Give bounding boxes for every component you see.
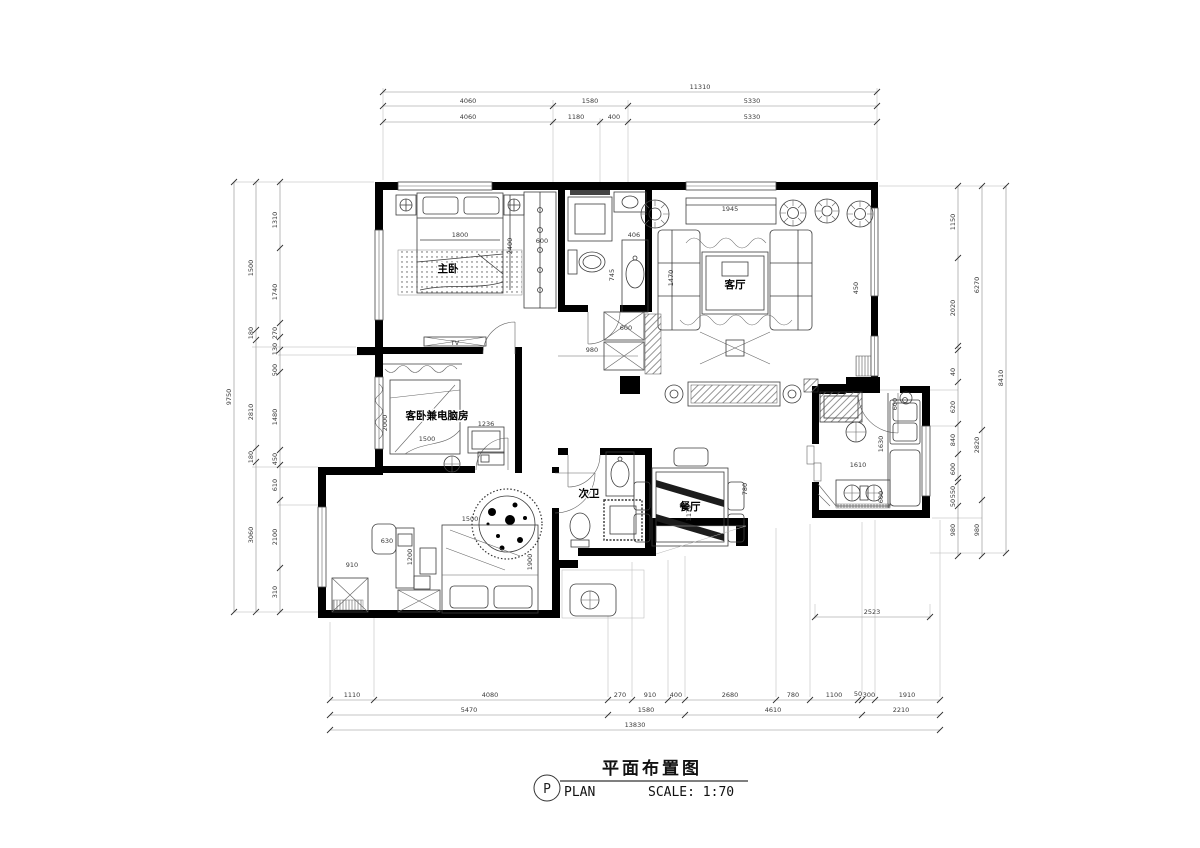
- dimension-label: 406: [628, 231, 640, 239]
- dimension-label: 400: [670, 691, 682, 699]
- dimension-label: 5330: [744, 113, 761, 121]
- dimension-label: 310: [271, 586, 279, 598]
- dimension-label: 910: [644, 691, 656, 699]
- dimension-label: 2820: [973, 437, 981, 454]
- dimension-label: 780: [741, 483, 749, 495]
- dimension-label: 1200: [406, 549, 414, 566]
- floorplan-page: 主卧客厅客卧兼电脑房次卫餐厅11310406015805330406011804…: [0, 0, 1200, 848]
- dimension-label: 1170: [685, 505, 693, 522]
- dimension-label: 3060: [247, 527, 255, 544]
- dimension-label: 1150: [949, 214, 957, 231]
- room-label: 次卫: [579, 487, 600, 500]
- dimension-label: 450: [852, 282, 860, 294]
- master-wardrobe: [524, 192, 556, 308]
- main-bathroom-fixtures: [568, 190, 648, 312]
- dimension-label: 1236: [478, 420, 495, 428]
- dimension-label: 13830: [625, 721, 646, 729]
- room-label: 主卧: [438, 262, 459, 275]
- dimension-label: 500: [271, 364, 279, 376]
- room-label: 客厅: [724, 278, 746, 291]
- dimension-label: 1610: [850, 461, 867, 469]
- room-label: 客卧兼电脑房: [405, 409, 469, 422]
- dimension-label: 600: [620, 324, 632, 332]
- dimension-label: 600: [536, 237, 548, 245]
- dimension-label: 2680: [722, 691, 739, 699]
- dimension-label: 550: [949, 486, 957, 498]
- plan-title-cn: 平面布置图: [602, 758, 702, 779]
- dimension-label: 1580: [638, 706, 655, 714]
- floorplan-drawing: 主卧客厅客卧兼电脑房次卫餐厅11310406015805330406011804…: [0, 0, 1200, 848]
- dimension-label: 40: [949, 368, 957, 376]
- dimension-label: 1580: [582, 97, 599, 105]
- dimension-label: 50: [949, 499, 957, 507]
- dimension-label: 610: [271, 479, 279, 491]
- dimension-label: 980: [949, 524, 957, 536]
- plant-icon: [641, 200, 669, 228]
- dimension-label: 6270: [973, 277, 981, 294]
- dimension-label: 1900: [526, 554, 534, 571]
- dimension-label: 620: [949, 401, 957, 413]
- plant-icon: [847, 201, 873, 227]
- dimension-label: 300: [863, 691, 875, 699]
- dimension-label: 2210: [893, 706, 910, 714]
- dimension-label: 270: [271, 327, 279, 339]
- dimension-label: 1800: [452, 231, 469, 239]
- dimension-label: 2100: [271, 529, 279, 546]
- dimension-label: 1500: [247, 260, 255, 277]
- dimension-label: 600: [877, 491, 885, 503]
- dimension-label: 600: [949, 463, 957, 475]
- dimension-label: 1500: [462, 515, 479, 523]
- living-room-furniture: [641, 198, 873, 406]
- dimension-label: 9750: [225, 389, 233, 406]
- dimension-label: 5470: [461, 706, 478, 714]
- dimension-label: 1500: [419, 435, 436, 443]
- dimension-label: 450: [271, 453, 279, 465]
- dimension-label: 840: [949, 434, 957, 446]
- dimension-label: 600: [891, 398, 899, 410]
- dimension-label: 11310: [690, 83, 711, 91]
- plan-scale: SCALE: 1:70: [648, 785, 734, 800]
- dimension-label: 1945: [722, 205, 739, 213]
- dimension-label: 1480: [271, 409, 279, 426]
- dimension-label: TV: [450, 339, 460, 347]
- dimension-label: 980: [973, 524, 981, 536]
- dimension-label: 2523: [864, 608, 881, 616]
- dimension-label: 180: [247, 327, 255, 339]
- dimension-label: 4060: [460, 113, 477, 121]
- dimension-label: 4610: [765, 706, 782, 714]
- dimension-label: 745: [608, 269, 616, 281]
- dimension-label: 2400: [506, 238, 514, 255]
- dimension-label: 1470: [667, 270, 675, 287]
- plant-icon: [815, 199, 839, 223]
- dimension-label: 270: [614, 691, 626, 699]
- dimension-label: 1100: [826, 691, 843, 699]
- dimension-label: 4080: [482, 691, 499, 699]
- plan-mark: P: [543, 782, 551, 797]
- dimension-label: 180: [247, 451, 255, 463]
- dimension-label: 2020: [949, 300, 957, 317]
- dimension-label: 4060: [460, 97, 477, 105]
- dimension-label: 1310: [271, 212, 279, 229]
- dimension-label: 630: [381, 537, 393, 545]
- master-bedroom-furniture: [396, 193, 524, 346]
- dimension-label: 50: [854, 690, 862, 698]
- dimension-label: 980: [586, 346, 598, 354]
- dimension-label: 130: [271, 343, 279, 355]
- dimension-label: 8410: [997, 370, 1005, 387]
- dimension-label: 2000: [381, 415, 389, 432]
- plan-label-en: PLAN: [564, 785, 595, 800]
- dimension-label: 1740: [271, 284, 279, 301]
- dimension-label: 1180: [568, 113, 585, 121]
- kitchen-fixtures: [818, 392, 920, 508]
- hallway-cabinets: [558, 312, 661, 374]
- dimension-label: 1910: [899, 691, 916, 699]
- dimension-label: 2810: [247, 404, 255, 421]
- dimension-label: 1630: [877, 436, 885, 453]
- plant-icon: [780, 200, 806, 226]
- dimension-label: 1110: [344, 691, 361, 699]
- dimension-label: 5330: [744, 97, 761, 105]
- title-block: P 平面布置图 PLAN SCALE: 1:70: [534, 758, 748, 801]
- dimension-label: 780: [787, 691, 799, 699]
- dimension-label: 400: [608, 113, 620, 121]
- dimension-label: 910: [346, 561, 358, 569]
